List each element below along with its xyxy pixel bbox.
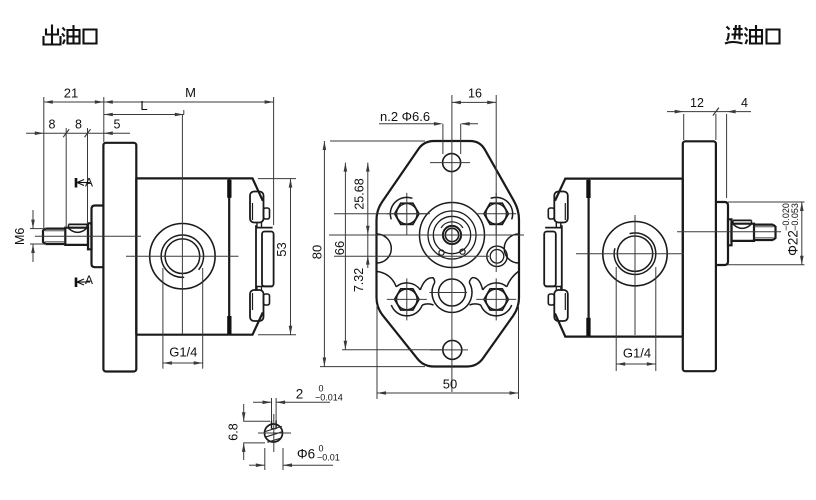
svg-text:L: L <box>140 98 147 113</box>
svg-text:80: 80 <box>310 245 325 259</box>
svg-text:6.8: 6.8 <box>227 423 241 440</box>
svg-text:21: 21 <box>64 86 78 101</box>
svg-text:G1/4: G1/4 <box>623 346 651 361</box>
svg-text:Φ22: Φ22 <box>786 230 801 256</box>
svg-text:53: 53 <box>274 242 289 256</box>
svg-text:2: 2 <box>296 387 304 402</box>
svg-text:A: A <box>85 176 93 190</box>
svg-text:G1/4: G1/4 <box>169 345 197 360</box>
svg-text:7.32: 7.32 <box>352 268 366 292</box>
svg-text:16: 16 <box>468 87 482 101</box>
svg-text:n.2 Φ6.6: n.2 Φ6.6 <box>380 109 430 124</box>
svg-text:A: A <box>85 273 93 287</box>
svg-text:50: 50 <box>443 377 457 392</box>
svg-text:Φ6: Φ6 <box>297 447 315 462</box>
svg-text:25.68: 25.68 <box>353 178 367 209</box>
svg-text:4: 4 <box>741 96 748 110</box>
svg-text:66: 66 <box>332 241 347 255</box>
svg-text:−0.053: −0.053 <box>790 203 800 231</box>
svg-text:−0.01: −0.01 <box>317 453 340 463</box>
svg-text:−0.014: −0.014 <box>315 393 343 403</box>
svg-text:12: 12 <box>690 96 704 110</box>
svg-text:5: 5 <box>114 118 121 132</box>
svg-text:M: M <box>185 85 196 100</box>
svg-text:M6: M6 <box>13 228 27 245</box>
svg-text:8: 8 <box>75 118 82 132</box>
svg-text:8: 8 <box>49 118 56 132</box>
